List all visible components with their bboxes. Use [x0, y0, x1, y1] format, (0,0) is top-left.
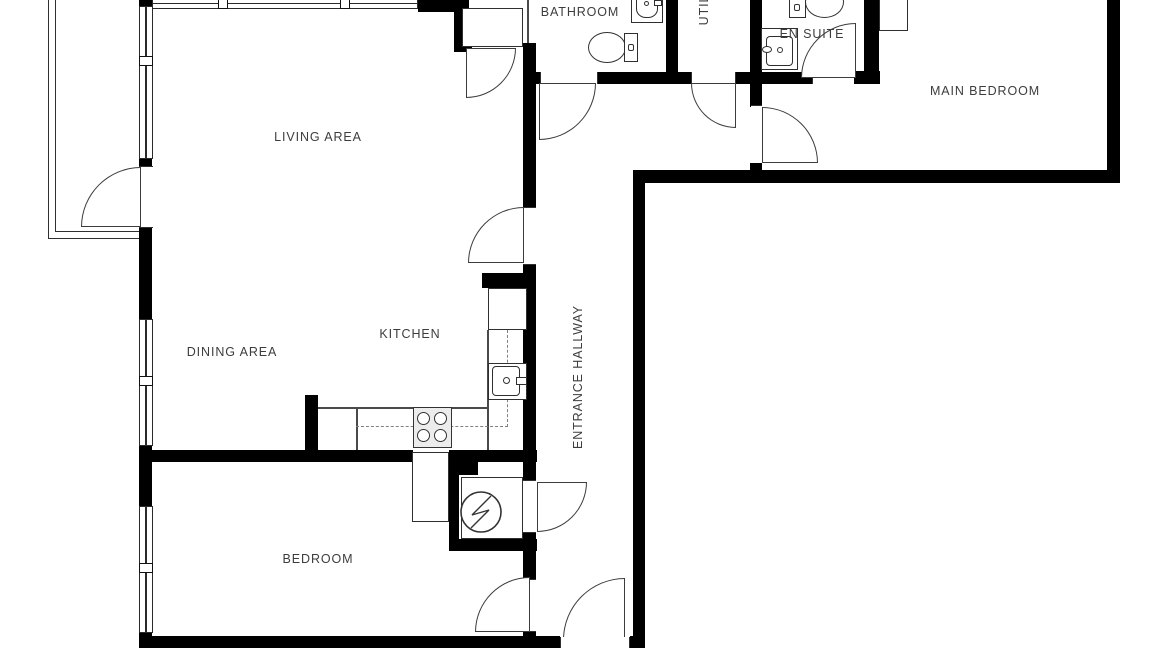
cupboard-door-swing [466, 48, 516, 98]
sink-tap [644, 1, 649, 6]
ensuite-toilet-icon [805, 0, 844, 18]
ensuite-drain [777, 47, 783, 53]
wall [1107, 0, 1120, 183]
wall [523, 632, 536, 648]
window-mullion [139, 563, 153, 573]
wall [598, 72, 666, 84]
bathroom-door-swing [539, 83, 596, 140]
kitchen-sink-drain [503, 377, 510, 384]
window [139, 6, 153, 159]
window-mullion [218, 0, 228, 9]
closet-door-swing [537, 482, 587, 532]
toilet-button [628, 44, 634, 51]
toilet-icon [588, 32, 626, 63]
ensuite-tap [762, 46, 772, 53]
kitchen-faucet [516, 377, 527, 385]
wall-thin [527, 0, 529, 44]
stove-icon [413, 407, 452, 448]
window-mullion [139, 56, 153, 66]
front-door-swing [563, 578, 625, 640]
wall [139, 636, 560, 648]
room-label-util: UTIL [697, 0, 711, 25]
wall [864, 0, 879, 84]
wall [139, 228, 152, 321]
cupboard [462, 8, 523, 47]
wall [523, 43, 536, 207]
main-bedroom-door-swing [762, 107, 818, 163]
room-label-bedroom: BEDROOM [283, 552, 354, 566]
wall [418, 0, 458, 12]
living-door-swing [468, 207, 524, 263]
floor-plan: LIVING AREA DINING AREA KITCHEN BEDROOM … [0, 0, 1170, 648]
boiler-icon [459, 490, 504, 535]
wall [305, 395, 318, 450]
room-label-living-area: LIVING AREA [274, 130, 362, 144]
ensuite-toilet-button [794, 4, 800, 11]
wardrobe [879, 0, 908, 31]
sink-tap2 [654, 0, 662, 6]
window [152, 0, 418, 9]
counter-edge [318, 407, 488, 409]
wall [139, 450, 413, 462]
room-label-en-suite: EN SUITE [780, 27, 845, 41]
wall [633, 170, 1120, 183]
wall [449, 455, 459, 551]
room-label-entrance-hallway: ENTRANCE HALLWAY [571, 305, 585, 449]
room-label-bathroom: BATHROOM [541, 5, 620, 19]
room-label-dining-area: DINING AREA [187, 345, 277, 359]
window-mullion [139, 376, 153, 386]
wall [523, 72, 540, 84]
bedroom-wardrobe-recess [412, 452, 449, 522]
front-door-jamb [560, 637, 630, 648]
closet-door-jamb [523, 480, 536, 533]
wall [482, 273, 536, 288]
util-door-swing [691, 83, 736, 128]
wall [666, 72, 691, 84]
kitchen-tall-unit [488, 288, 527, 330]
wall [633, 170, 645, 648]
window-mullion [340, 0, 350, 9]
room-label-main-bedroom: MAIN BEDROOM [930, 84, 1040, 98]
counter-divider [356, 407, 358, 450]
room-label-kitchen: KITCHEN [379, 327, 440, 341]
wall [449, 539, 537, 551]
bedroom-door-swing [475, 577, 530, 632]
living-door-jamb [523, 207, 536, 265]
balcony-door-jamb [139, 166, 153, 228]
main-bedroom-door-jamb [751, 105, 762, 165]
